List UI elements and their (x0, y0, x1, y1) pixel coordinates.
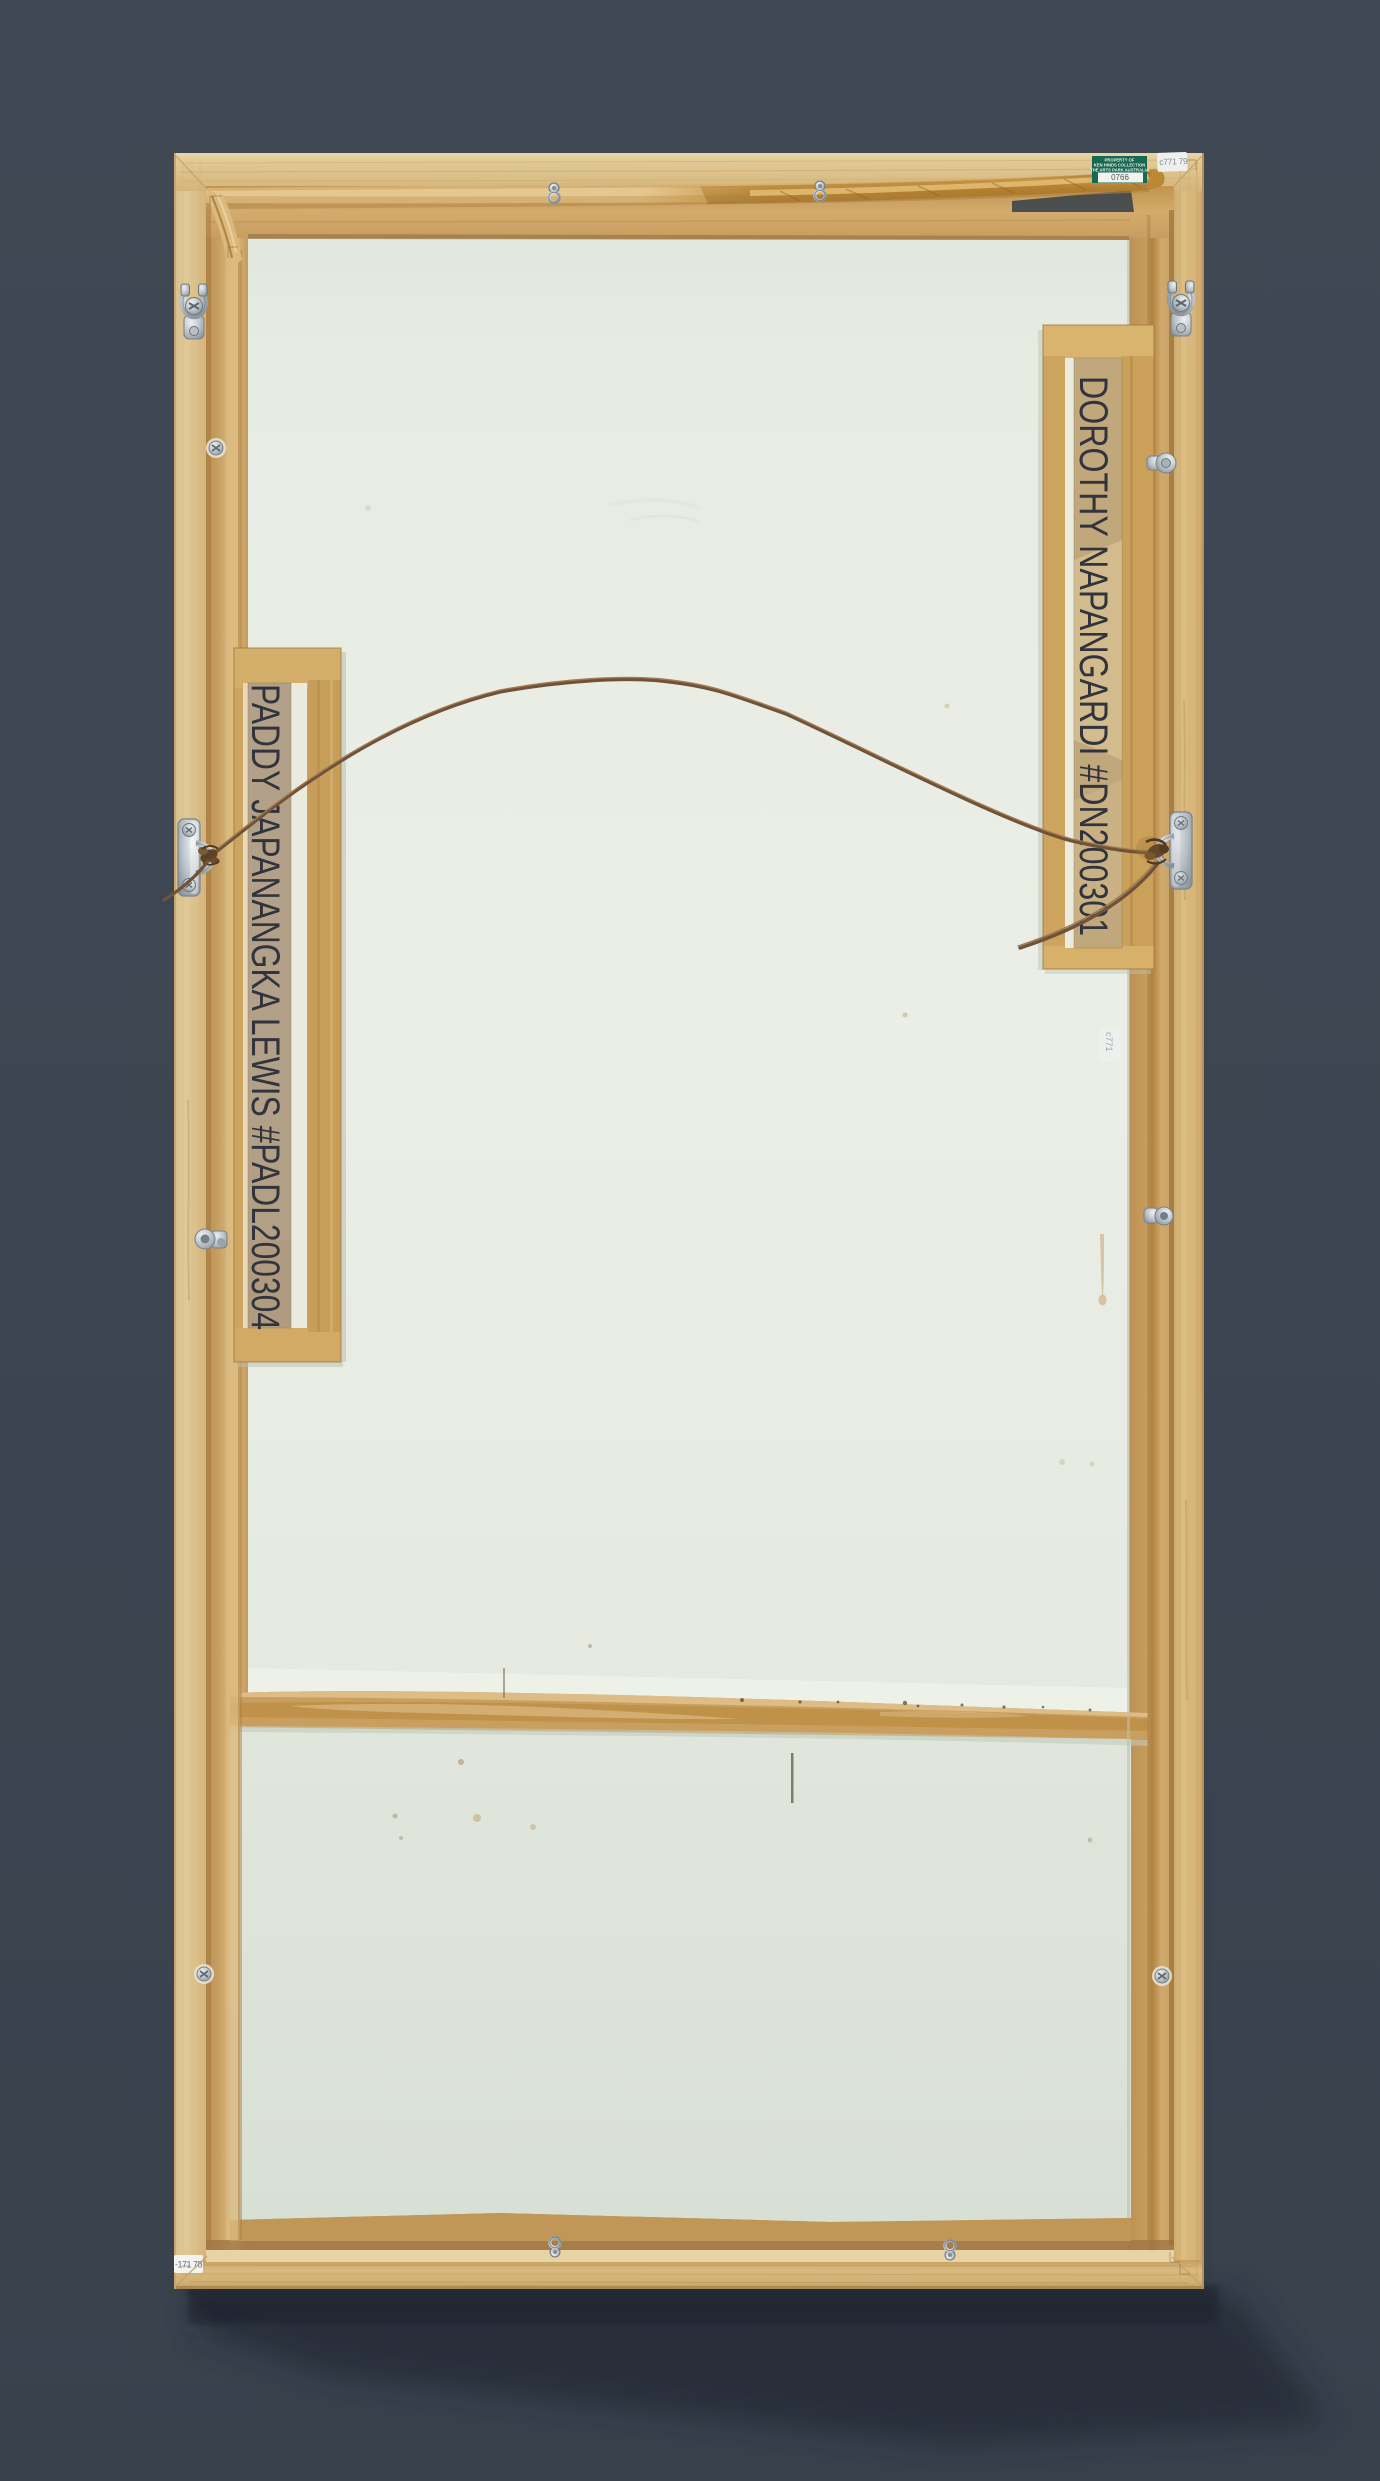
svg-text:DOROTHY NAPANGARDI #DN200301: DOROTHY NAPANGARDI #DN200301 (1071, 376, 1115, 936)
svg-text:0766: 0766 (1111, 173, 1129, 182)
svg-text:PADDY JAPANANGKA LEWIS #PADL2: PADDY JAPANANGKA LEWIS #PADL200304 (243, 684, 287, 1330)
svg-text:THE ARTS PARK AUSTRALIA: THE ARTS PARK AUSTRALIA (1090, 168, 1149, 173)
svg-text:c771 79: c771 79 (1159, 156, 1188, 167)
svg-text:c771: c771 (1104, 1032, 1114, 1052)
